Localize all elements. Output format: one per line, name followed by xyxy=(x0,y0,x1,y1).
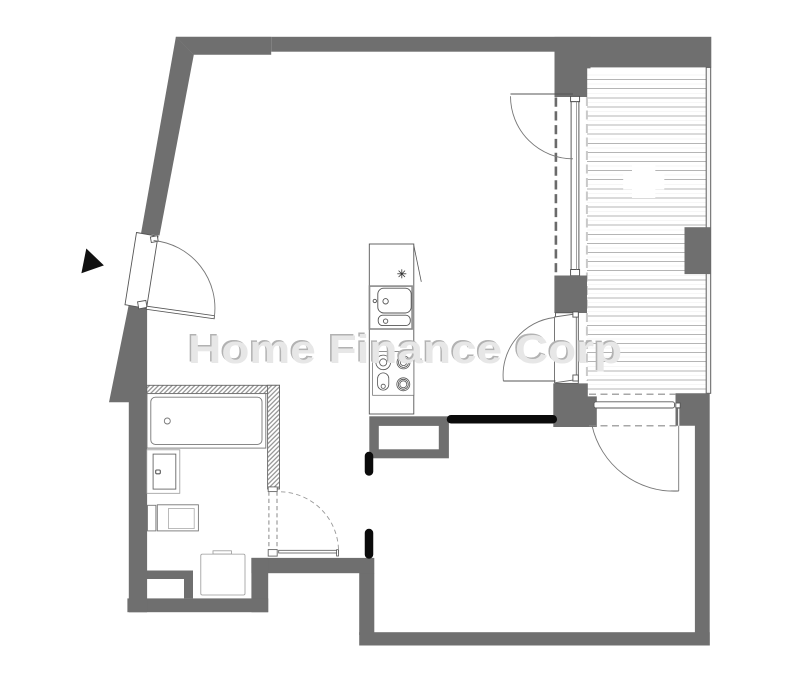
svg-text:Home Finance Corp: Home Finance Corp xyxy=(188,328,622,372)
